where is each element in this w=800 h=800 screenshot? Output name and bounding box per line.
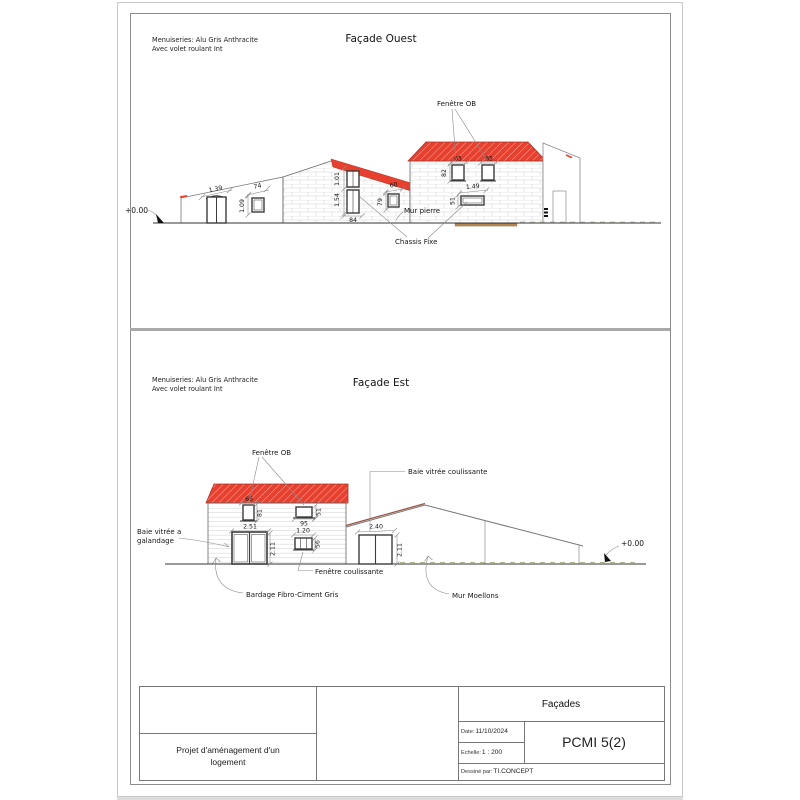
tb-scale-value: 1 : 200: [482, 749, 502, 756]
dim-fixed-height: 51: [450, 197, 457, 205]
label-mur-pierre: Mur pierre: [404, 207, 440, 215]
tb-author-value: TI.CONCEPT: [493, 768, 533, 775]
tb-divider-v1: [316, 687, 317, 780]
label-fenetre-ob-west: Fenêtre OB: [437, 100, 476, 108]
west-leanto-wing: [180, 177, 283, 223]
dim-small-width: 60: [389, 181, 398, 189]
title-block: Projet d'aménagement d'un logement Façad…: [139, 686, 665, 781]
dim-fixed-width: 1.49: [466, 183, 480, 191]
label-bardage: Bardage Fibro-Ciment Gris: [246, 591, 339, 599]
moellons-descending-edge: [425, 505, 583, 546]
fixed-window-inner: [463, 198, 482, 203]
tb-author-cell: Dessiné par: TI.CONCEPT: [458, 763, 667, 780]
leader-baie-coulissante: [370, 472, 405, 532]
west-facade-title: Façade Ouest: [311, 33, 451, 45]
dim-slider-height: 56: [315, 540, 322, 548]
tb-date-cell: Date: 11/10/2024: [458, 721, 527, 742]
note-line1: Menuiseries: Alu Gris Anthracite: [152, 376, 258, 385]
tb-scale-cell: Echelle: 1 : 200: [458, 742, 527, 763]
bay-galandage-leaf-1: [234, 535, 248, 563]
leader-moellons: [425, 556, 450, 594]
dim-top-height: 51: [316, 508, 323, 516]
east-menuiseries-note: Menuiseries: Alu Gris Anthracite Avec vo…: [152, 376, 258, 394]
east-facade-title: Façade Est: [311, 377, 451, 389]
dim-ob-height: 81: [257, 509, 264, 517]
label-fenetre-coulissante: Fenêtre coulissante: [315, 568, 383, 576]
bay-galandage-leaf-2: [252, 535, 266, 563]
leader-level-east: [606, 546, 619, 555]
wing-door: [553, 191, 566, 223]
tb-date-value: 11/10/2024: [475, 728, 508, 735]
tb-project-line1: Projet d'aménagement d'un: [176, 745, 279, 756]
tb-scale-label: Echelle:: [461, 750, 481, 756]
tb-author-label: Dessiné par:: [461, 769, 492, 775]
tb-code-cell: PCMI 5(2): [524, 721, 664, 763]
west-menuiseries-note: Menuiseries: Alu Gris Anthracite Avec vo…: [152, 36, 258, 54]
dim-top-width: 95: [300, 521, 308, 528]
top-window: [296, 507, 312, 517]
terrace-strip: [455, 224, 517, 227]
dim-slider-width: 1.20: [296, 528, 310, 535]
dim-bay2-width: 2.40: [369, 524, 383, 531]
west-right-wing: [543, 143, 580, 223]
small-window-inner: [390, 196, 397, 205]
dim-attic1-width: 65: [454, 156, 462, 163]
section-divider: [130, 328, 670, 331]
tb-date-label: Date:: [461, 729, 474, 735]
note-line1: Menuiseries: Alu Gris Anthracite: [152, 36, 258, 45]
ob-window: [243, 505, 254, 520]
dim-stack-total: 1.54: [334, 193, 341, 207]
level-arrow-east: [604, 553, 611, 562]
tb-project-cell: Projet d'aménagement d'un logement: [140, 733, 316, 780]
level-arrow-west: [156, 214, 164, 223]
leanto-window-inner: [254, 200, 262, 210]
label-fenetre-ob-east: Fenêtre OB: [252, 449, 291, 457]
label-baie-coulissante: Baie vitrée coulissante: [408, 468, 488, 476]
attic-window-2: [482, 165, 494, 180]
label-baie-galandage-line1: Baie vitrée a: [137, 528, 181, 536]
east-elevation-drawing: 66 81 95 51 2.51 2.11 1.20 56 2.40 2.11 …: [117, 440, 683, 615]
label-mur-moellons: Mur Moellons: [452, 592, 499, 600]
moellons-ridge-accent: [346, 504, 425, 526]
sliding-window: [295, 538, 312, 549]
attic-window-1: [452, 165, 464, 180]
wall-vent: [544, 208, 548, 217]
tb-project-line2: logement: [176, 757, 279, 768]
note-line2: Avec volet roulant Int: [152, 45, 258, 54]
dim-window-height: 1.09: [239, 199, 246, 213]
dim-stack-upper: 1.01: [334, 172, 341, 186]
dim-bay1-width: 2.51: [243, 524, 257, 531]
east-siding-wall: [208, 503, 346, 564]
dim-bay1-height: 2.11: [270, 542, 277, 556]
leanto-wall: [181, 177, 283, 223]
note-line2: Avec volet roulant Int: [152, 385, 258, 394]
moellons-rising-edge: [346, 505, 425, 527]
dim-attic-height: 82: [441, 169, 448, 177]
dim-bay2-height: 2.11: [397, 543, 404, 557]
label-chassis-fixe: Chassis Fixe: [395, 238, 437, 246]
east-red-roof: [206, 484, 348, 503]
west-elevation-drawing: 1.39 74 1.09 1.01 1.54 84 60 79 65 65 82…: [117, 90, 683, 260]
level-label-east: +0.00: [621, 539, 644, 548]
dim-small-height: 79: [377, 198, 384, 206]
label-baie-galandage-line2: galandage: [137, 537, 174, 545]
level-label-west: +0.00: [125, 206, 148, 215]
dim-stack-width: 84: [349, 217, 357, 224]
tb-sheet-cell: Façades: [458, 687, 664, 721]
